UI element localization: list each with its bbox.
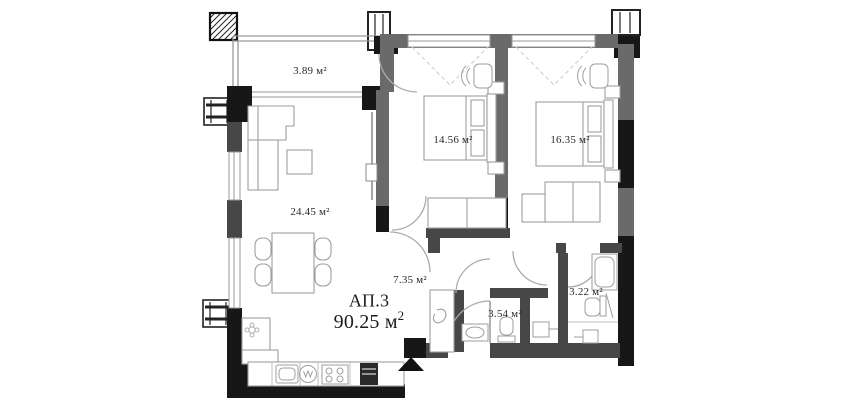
wall-mirror-bedroom-1 [462,64,492,88]
fridge [360,363,378,385]
floor-plan-drawing [0,0,841,400]
wardrobe-bedroom-2 [522,182,600,222]
column-hatched-top-left [210,13,237,40]
wc-fixtures [568,254,618,343]
terrace-railing [233,36,383,88]
wardrobe-bedroom-1 [428,198,506,228]
wc-area-label: 3.22 м² [569,286,603,298]
tv-unit [366,112,377,200]
total-area-sup: 2 [398,308,405,323]
terrace-area-label: 3.89 м² [293,65,327,77]
bedroom-1-area-label: 14.56 м² [433,134,472,146]
column-top-right [612,10,640,35]
dining-set [255,233,331,293]
apartment-total-area-label: 90.25 м2 [334,308,405,334]
wall-mirror-bedroom-2 [578,64,608,88]
hallway-area-label: 7.35 м² [393,274,427,286]
utility-closet-fixtures [533,322,558,337]
sofa [248,106,294,190]
hall-cabinet [430,290,454,352]
bedroom-2-area-label: 16.35 м² [550,134,589,146]
total-area-value: 90.25 м [334,311,398,333]
living-area-label: 24.45 м² [290,206,329,218]
coffee-table [287,150,312,174]
bed-bedroom-1 [424,82,504,174]
bathroom-area-label: 3.54 м² [488,308,522,320]
bathroom-fixtures [462,317,515,342]
floor-plan: 3.89 м² 14.56 м² 16.35 м² 24.45 м² 7.35 … [0,0,841,400]
